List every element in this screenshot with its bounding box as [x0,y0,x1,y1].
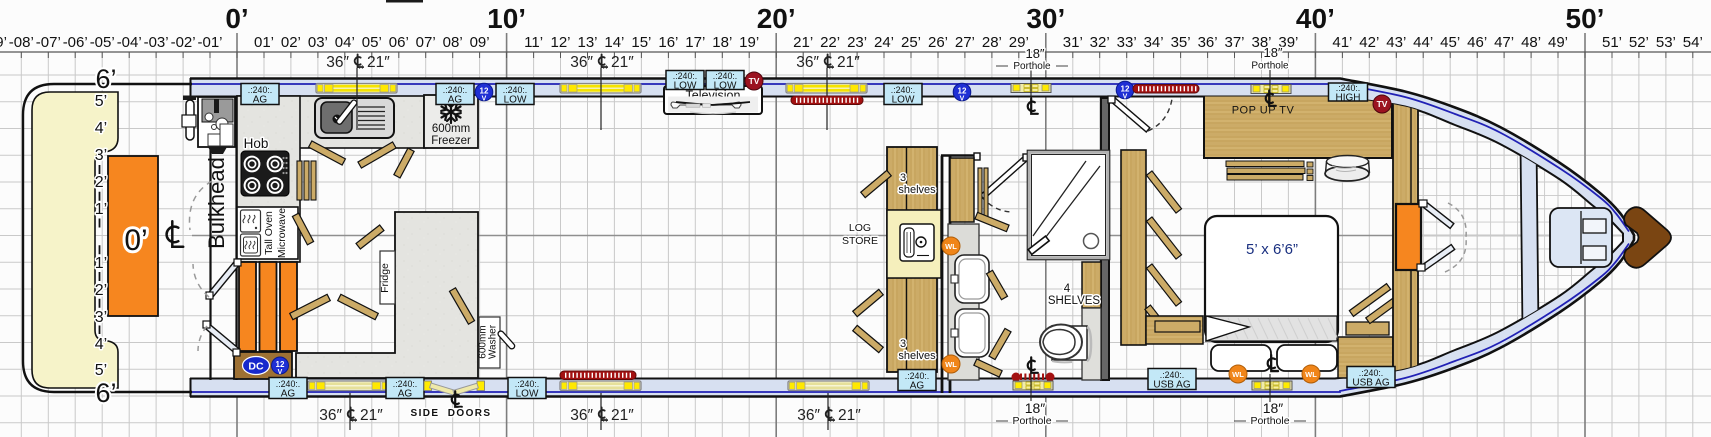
svg-text:35’: 35’ [1171,34,1191,51]
svg-text:22’: 22’ [820,34,840,51]
svg-text:-02’: -02’ [171,34,196,51]
svg-text:12: 12 [276,360,285,369]
svg-text:21″: 21″ [837,54,860,71]
svg-text:×: × [829,415,834,425]
svg-text:.:240:.: .:240:. [905,371,929,381]
svg-text:36″: 36″ [326,54,349,71]
svg-text:36″: 36″ [570,54,593,71]
svg-text:5’: 5’ [95,93,107,110]
svg-text:36″: 36″ [797,407,820,424]
svg-text:45’: 45’ [1440,34,1460,51]
svg-text:12: 12 [958,87,967,96]
svg-text:4’: 4’ [95,120,107,137]
svg-text:43’: 43’ [1386,34,1406,51]
svg-text:.:240:.: .:240:. [393,379,417,389]
svg-text:shelves: shelves [898,184,936,196]
svg-text:10’: 10’ [487,3,526,34]
svg-text:54’: 54’ [1683,34,1703,51]
svg-text:14’: 14’ [604,34,624,51]
svg-text:POP UP TV: POP UP TV [1232,105,1295,117]
svg-text:.:240:.: .:240:. [443,85,467,95]
svg-text:600mm: 600mm [432,123,470,135]
svg-text:6’: 6’ [95,64,116,94]
svg-text:.:240:.: .:240:. [673,71,697,81]
svg-text:Microwave: Microwave [276,208,288,258]
svg-text:.:240:.: .:240:. [891,85,915,95]
svg-text:28’: 28’ [982,34,1002,51]
svg-text:Fridge: Fridge [379,263,391,293]
svg-text:12’: 12’ [550,34,570,51]
svg-text:25’: 25’ [901,34,921,51]
svg-text:0’: 0’ [124,224,147,257]
svg-text:-09’: -09’ [0,34,7,51]
svg-text:1’: 1’ [95,255,107,272]
svg-text:41’: 41’ [1332,34,1352,51]
svg-text:.:240:.: .:240:. [1336,83,1360,93]
svg-text:21″: 21″ [838,407,861,424]
svg-text:USB AG: USB AG [1153,380,1190,391]
svg-text:18″: 18″ [1025,400,1046,416]
svg-text:AG: AG [910,381,925,392]
svg-text:31’: 31’ [1063,34,1083,51]
svg-text:.:240:.: .:240:. [248,85,272,95]
svg-text:40’: 40’ [1296,3,1335,34]
svg-text:18″: 18″ [1263,45,1282,60]
svg-text:Hob: Hob [244,136,269,151]
svg-text:WL: WL [945,360,957,369]
svg-text:Washer: Washer [488,324,499,359]
svg-text:34’: 34’ [1144,34,1164,51]
svg-text:09’: 09’ [470,34,490,51]
svg-text:4’: 4’ [95,336,107,353]
svg-text:18″: 18″ [1263,400,1284,416]
svg-text:Porthole: Porthole [1250,415,1289,427]
svg-text:32’: 32’ [1090,34,1110,51]
svg-text:52’: 52’ [1629,34,1649,51]
svg-text:LOW: LOW [504,95,527,106]
svg-text:12: 12 [1121,85,1130,94]
svg-text:3’: 3’ [95,147,107,164]
svg-text:01’: 01’ [254,34,274,51]
svg-text:V: V [1123,94,1128,101]
svg-text:×: × [351,415,356,425]
svg-text:AG: AG [281,389,296,400]
svg-text:4: 4 [1064,283,1071,295]
svg-text:21″: 21″ [367,54,390,71]
svg-text:AG: AG [398,389,413,400]
svg-text:LOW: LOW [516,389,539,400]
svg-text:21’: 21’ [793,34,813,51]
svg-text:WL: WL [945,242,957,251]
svg-text:12: 12 [480,87,489,96]
svg-text:37’: 37’ [1224,34,1244,51]
svg-text:15’: 15’ [631,34,651,51]
svg-text:Porthole: Porthole [1251,61,1289,72]
svg-text:1’: 1’ [95,201,107,218]
svg-text:36″: 36″ [796,54,819,71]
svg-text:.:240:.: .:240:. [515,379,539,389]
svg-text:05’: 05’ [362,34,382,51]
svg-text:-08’: -08’ [9,34,34,51]
svg-text:17’: 17’ [685,34,705,51]
svg-text:19’: 19’ [739,34,759,51]
svg-text:06’: 06’ [389,34,409,51]
svg-text:33’: 33’ [1117,34,1137,51]
svg-text:SIDE DOORS: SIDE DOORS [411,408,492,419]
svg-text:2’: 2’ [95,174,107,191]
svg-text:×: × [828,62,833,72]
svg-text:V: V [278,369,283,376]
svg-text:-01’: -01’ [197,34,222,51]
svg-text:-04’: -04’ [117,34,142,51]
svg-text:Freezer: Freezer [431,135,471,147]
svg-text:-05’: -05’ [90,34,115,51]
svg-text:46’: 46’ [1467,34,1487,51]
svg-text:AG: AG [448,95,463,106]
svg-text:×: × [602,62,607,72]
svg-text:LOW: LOW [674,81,697,92]
svg-text:11’: 11’ [524,34,543,51]
svg-text:WL: WL [1305,370,1317,379]
svg-text:07’: 07’ [416,34,436,51]
svg-text:HIGH: HIGH [1336,93,1361,104]
svg-text:-07’: -07’ [36,34,61,51]
svg-text:.:240:.: .:240:. [1160,370,1184,380]
svg-text:.:240:.: .:240:. [1359,368,1383,378]
svg-text:USB AG: USB AG [1352,378,1389,389]
svg-text:21″: 21″ [611,54,634,71]
svg-text:SHELVES: SHELVES [1048,295,1101,307]
svg-text:5’ x 6’6”: 5’ x 6’6” [1246,241,1298,258]
svg-text:08’: 08’ [443,34,463,51]
svg-text:21″: 21″ [611,407,634,424]
svg-text:18″: 18″ [1025,46,1044,61]
svg-text:18’: 18’ [712,34,732,51]
svg-text:Porthole: Porthole [1012,415,1051,427]
svg-text:LOW: LOW [714,81,737,92]
svg-text:LOG: LOG [849,222,871,234]
svg-text:2’: 2’ [95,282,107,299]
svg-text:51’: 51’ [1602,34,1622,51]
svg-text:Tall Oven: Tall Oven [263,211,275,255]
svg-text:0’: 0’ [225,3,248,34]
svg-text:AG: AG [253,95,268,106]
svg-text:48’: 48’ [1521,34,1541,51]
svg-text:6’: 6’ [95,378,116,408]
svg-text:53’: 53’ [1656,34,1676,51]
svg-text:Porthole: Porthole [1013,61,1051,72]
svg-text:×: × [358,62,363,72]
svg-text:STORE: STORE [842,235,878,247]
svg-text:44’: 44’ [1413,34,1433,51]
svg-text:16’: 16’ [658,34,678,51]
svg-text:26’: 26’ [928,34,948,51]
svg-text:V: V [960,96,965,103]
svg-text:21″: 21″ [360,407,383,424]
svg-text:02’: 02’ [281,34,301,51]
svg-text:03’: 03’ [308,34,328,51]
svg-text:36″: 36″ [570,407,593,424]
svg-text:36″: 36″ [319,407,342,424]
svg-text:3: 3 [900,172,906,184]
svg-text:49’: 49’ [1548,34,1568,51]
svg-text:5’: 5’ [95,362,107,379]
svg-text:27’: 27’ [955,34,975,51]
svg-text:50’: 50’ [1566,3,1605,34]
svg-text:V: V [482,96,487,103]
svg-text:13’: 13’ [577,34,597,51]
svg-text:42’: 42’ [1359,34,1379,51]
svg-text:-06’: -06’ [63,34,88,51]
svg-text:×: × [602,415,607,425]
svg-text:04’: 04’ [335,34,355,51]
svg-text:WL: WL [1232,370,1244,379]
svg-text:3’: 3’ [95,309,107,326]
svg-text:Bulkhead: Bulkhead [204,157,229,249]
svg-text:30’: 30’ [1026,3,1065,34]
svg-text:.:240:.: .:240:. [503,85,527,95]
svg-text:3: 3 [900,338,906,350]
svg-text:20’: 20’ [757,3,796,34]
svg-text:shelves: shelves [898,350,936,362]
svg-text:DC: DC [248,361,264,373]
svg-text:.:240:.: .:240:. [276,379,300,389]
svg-text:-03’: -03’ [144,34,169,51]
svg-text:LOW: LOW [892,95,915,106]
svg-text:36’: 36’ [1198,34,1218,51]
svg-text:24’: 24’ [874,34,894,51]
svg-text:TV: TV [1377,99,1388,109]
svg-text:TV: TV [749,76,760,86]
svg-text:.:240:.: .:240:. [713,71,737,81]
svg-text:23’: 23’ [847,34,867,51]
svg-text:47’: 47’ [1494,34,1514,51]
